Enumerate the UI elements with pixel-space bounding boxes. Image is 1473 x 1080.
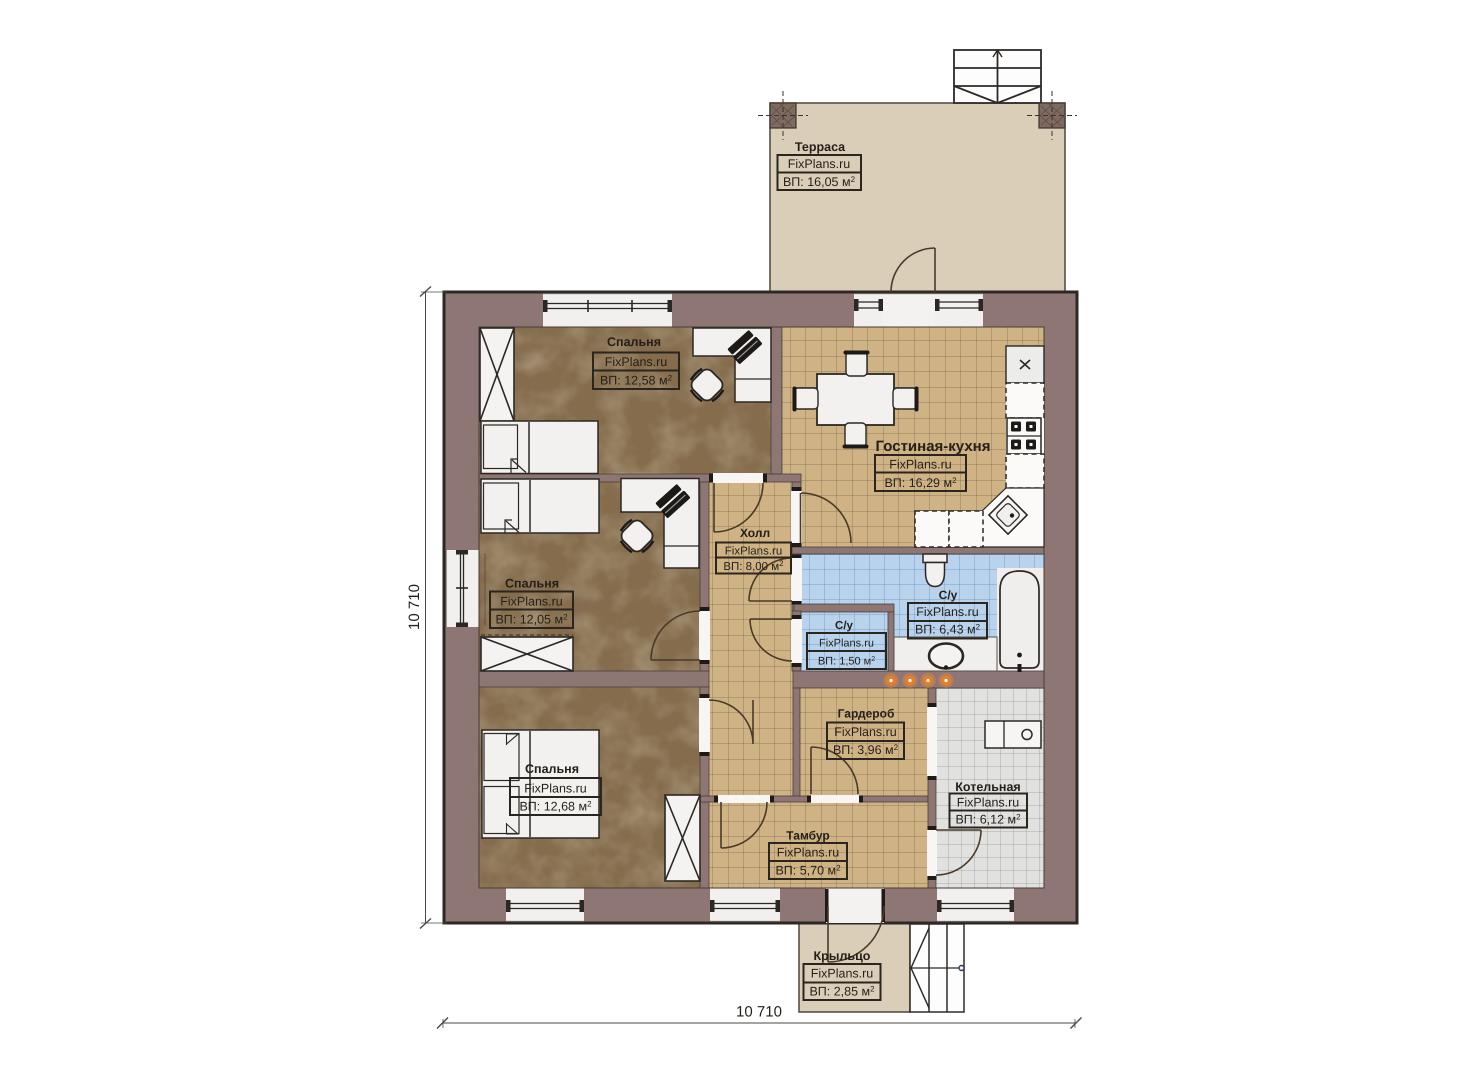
svg-text:Котельная: Котельная [955,780,1020,794]
svg-text:Терраса: Терраса [795,140,846,154]
svg-text:ВП: 2,85 м2: ВП: 2,85 м2 [809,985,875,999]
svg-text:Гостиная-кухня: Гостиная-кухня [876,438,991,455]
svg-text:Спальня: Спальня [607,335,661,349]
svg-text:ВП: 12,58 м2: ВП: 12,58 м2 [600,374,673,388]
svg-text:FixPlans.ru: FixPlans.ru [500,595,563,609]
svg-text:ВП: 12,05 м2: ВП: 12,05 м2 [495,613,568,627]
svg-text:ВП: 6,43 м2: ВП: 6,43 м2 [915,623,981,637]
svg-text:Спальня: Спальня [525,762,579,776]
svg-text:С/у: С/у [939,588,958,602]
svg-text:FixPlans.ru: FixPlans.ru [811,967,874,981]
svg-text:FixPlans.ru: FixPlans.ru [777,846,840,860]
svg-text:ВП: 16,29 м2: ВП: 16,29 м2 [884,476,957,490]
svg-text:ВП: 1,50 м2: ВП: 1,50 м2 [818,656,875,668]
svg-text:FixPlans.ru: FixPlans.ru [889,458,952,472]
svg-text:FixPlans.ru: FixPlans.ru [957,796,1020,810]
svg-text:Спальня: Спальня [505,577,559,591]
svg-text:FixPlans.ru: FixPlans.ru [916,605,979,619]
svg-text:FixPlans.ru: FixPlans.ru [834,725,897,739]
svg-text:Холл: Холл [740,526,770,540]
svg-text:ВП: 3,96 м2: ВП: 3,96 м2 [833,743,899,757]
svg-text:Гардероб: Гардероб [838,707,895,721]
svg-text:FixPlans.ru: FixPlans.ru [725,546,783,558]
svg-text:10 710: 10 710 [736,1004,782,1021]
svg-text:FixPlans.ru: FixPlans.ru [819,638,874,650]
svg-text:ВП: 12,68 м2: ВП: 12,68 м2 [519,800,592,814]
svg-text:ВП: 16,05 м2: ВП: 16,05 м2 [783,175,856,189]
svg-text:FixPlans.ru: FixPlans.ru [524,782,587,796]
svg-text:ВП: 5,70 м2: ВП: 5,70 м2 [775,864,841,878]
svg-text:Тамбур: Тамбур [786,829,830,843]
svg-text:ВП: 6,12 м2: ВП: 6,12 м2 [955,813,1021,827]
svg-text:FixPlans.ru: FixPlans.ru [605,355,668,369]
svg-text:С/у: С/у [835,620,854,632]
svg-text:ВП: 8,00 м2: ВП: 8,00 м2 [723,559,784,573]
svg-text:FixPlans.ru: FixPlans.ru [788,157,851,171]
svg-text:10 710: 10 710 [406,584,423,630]
svg-text:Крыльцо: Крыльцо [814,949,871,963]
